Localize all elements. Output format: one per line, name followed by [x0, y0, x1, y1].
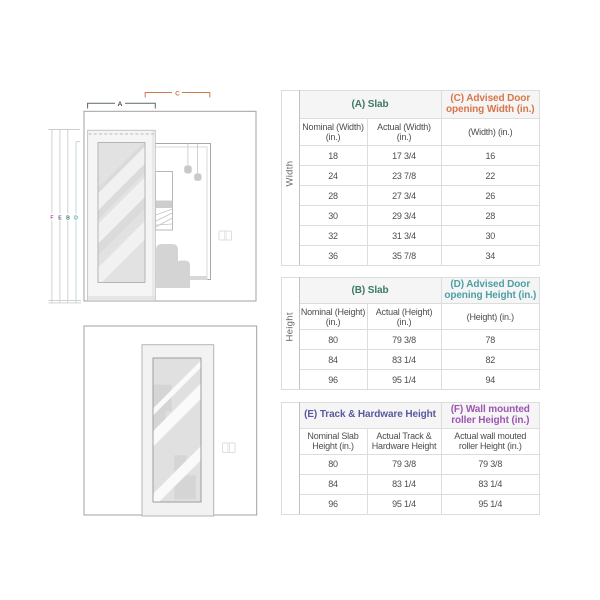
svg-text:E: E	[58, 216, 62, 222]
svg-text:A: A	[118, 101, 123, 108]
svg-text:C: C	[175, 91, 180, 98]
svg-text:F: F	[50, 215, 53, 221]
svg-text:B: B	[66, 216, 70, 222]
svg-text:D: D	[74, 216, 78, 222]
